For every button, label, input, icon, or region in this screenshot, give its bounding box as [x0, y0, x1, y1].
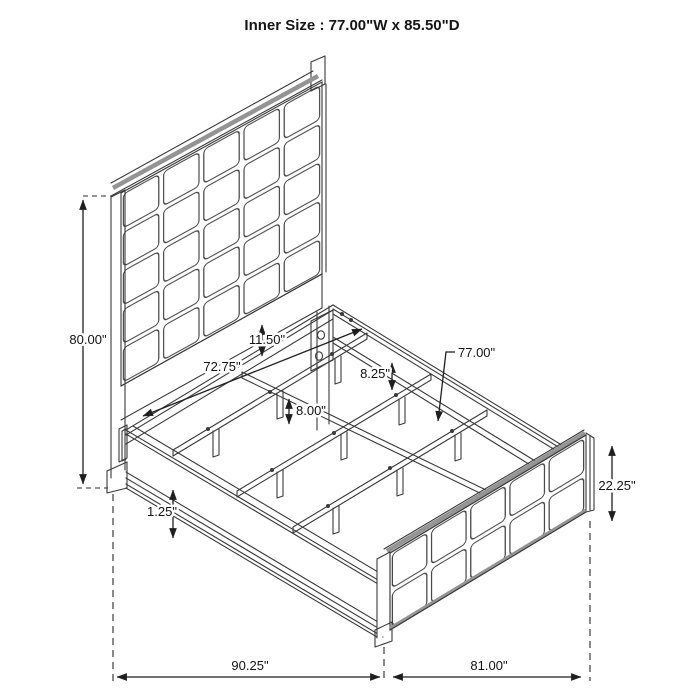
dim-side-rail-height: 8.25"	[360, 363, 392, 390]
bed-drawing-svg: Inner Size : 77.00"W x 85.50"D	[0, 0, 700, 700]
dim-label-base-trim: 1.25"	[147, 504, 177, 519]
headboard	[107, 56, 329, 493]
dim-label-panel-gap: 11.50"	[249, 332, 286, 347]
dim-label-leg-height: 8.00"	[296, 403, 326, 418]
dim-label-headboard-height: 80.00"	[69, 332, 107, 347]
dimension-diagram: Inner Size : 77.00"W x 85.50"D	[0, 0, 700, 700]
dim-label-rail-height: 8.25"	[360, 366, 390, 381]
bed-frame	[119, 305, 578, 637]
side-rail-front	[126, 426, 383, 637]
dim-footboard-height: 22.25"	[598, 446, 636, 521]
page-title: Inner Size : 77.00"W x 85.50"D	[244, 17, 459, 34]
dim-label-footboard-height: 22.25"	[598, 478, 636, 493]
dim-rail-base-trim: 1.25"	[147, 490, 177, 538]
dim-label-overall-length: 90.25"	[231, 658, 269, 673]
footboard	[375, 430, 594, 647]
dim-slat-leg-height: 8.00"	[289, 399, 326, 424]
center-rail	[242, 372, 486, 496]
dim-overall-length: 90.25"	[113, 494, 384, 681]
dim-label-inner-width: 72.75"	[203, 359, 241, 374]
dim-headboard-height: 80.00"	[69, 196, 111, 488]
dim-label-footboard-width: 81.00"	[470, 658, 508, 673]
dim-label-slat-length: 77.00"	[458, 345, 496, 360]
